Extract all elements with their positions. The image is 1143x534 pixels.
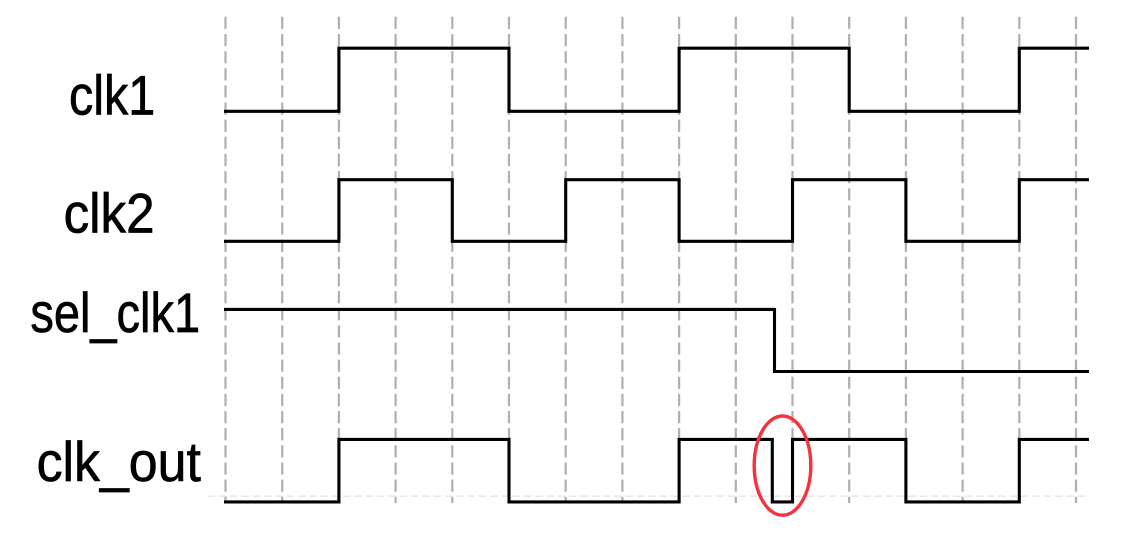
svg-text:clk2: clk2 bbox=[64, 182, 155, 245]
svg-text:sel_clk1: sel_clk1 bbox=[30, 281, 200, 344]
svg-text:clk1: clk1 bbox=[69, 64, 155, 127]
svg-text:clk_out: clk_out bbox=[37, 430, 202, 493]
